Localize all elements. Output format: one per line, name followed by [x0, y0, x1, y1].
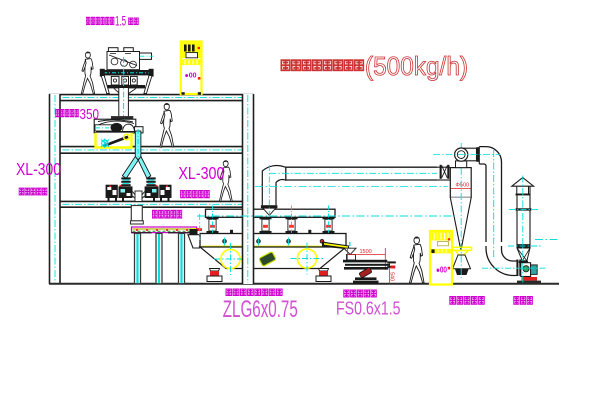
svg-text:Φ500: Φ500 — [456, 183, 470, 189]
svg-text:1500: 1500 — [360, 249, 372, 255]
svg-text:FS0.6x1.5: FS0.6x1.5 — [336, 298, 401, 319]
svg-text:XL-300: XL-300 — [178, 163, 224, 183]
svg-text:(500kg/h): (500kg/h) — [365, 51, 468, 81]
svg-text:●00: ●00 — [185, 73, 197, 80]
svg-text:350: 350 — [80, 106, 100, 123]
svg-text:540: 540 — [389, 272, 395, 281]
svg-text:XL-300: XL-300 — [16, 159, 61, 179]
svg-text:●00: ●00 — [436, 266, 447, 275]
svg-text:1.5: 1.5 — [115, 13, 126, 29]
svg-text:ZLG6x0.75: ZLG6x0.75 — [223, 296, 298, 323]
